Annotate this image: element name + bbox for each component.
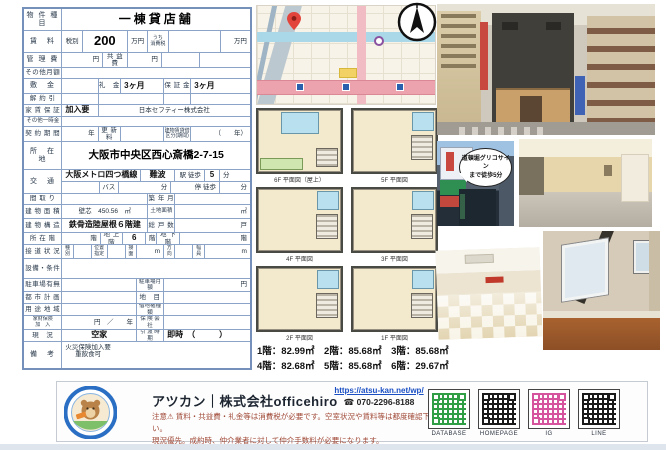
floorplan: 3F 平面図 [351, 187, 438, 263]
table-row: その他一時金 [24, 117, 250, 127]
station-badge [296, 83, 304, 91]
photo-interior-room [519, 139, 652, 227]
table-subcolumn: 大阪メトロ四つ橋線難波駅 徒歩5分バス分停 徒歩分 [62, 170, 250, 193]
table-cell: 地 目 [137, 292, 164, 303]
photo-building-exterior [437, 4, 655, 135]
table-cell: 火災保険加入要 重飲食可 [62, 342, 250, 368]
table-cell: 保 険 会 社 [137, 316, 164, 329]
table-cell: バス [100, 182, 119, 193]
table-row: 用 途 地 域借地権種類 [24, 304, 250, 316]
table-cell [99, 94, 165, 104]
table-cell: 建 物 面 積 [24, 205, 62, 218]
table-cell: 5 [205, 170, 220, 181]
floorplan-caption: 5F 平面図 [381, 175, 408, 184]
table-cell: 大阪メトロ四つ橋線 [62, 170, 141, 181]
table-cell [191, 94, 250, 104]
table-cell: 円 [164, 279, 250, 291]
table-cell [62, 68, 250, 78]
table-row: 所 在 階階地 上 階6階地 下 階階 [24, 233, 250, 245]
table-cell: 建 物 構 造 [24, 219, 62, 232]
table-cell: 建物賃貸借 区分(期間) [164, 127, 191, 141]
table-cell: 種 別 [62, 245, 73, 258]
table-cell [74, 245, 92, 258]
table-cell: 所 在 階 [24, 233, 62, 244]
table-row: 管 理 費円共 益 費円 [24, 53, 250, 68]
footer-note-2: 現況優先。成約時、仲介業者に対して仲介手数料が必要になります。 [152, 435, 442, 444]
table-row: 家 賃 保 証加入要日本セフティー株式会社 [24, 105, 250, 117]
station-badge [396, 83, 404, 91]
table-cell: 借地権種類 [137, 304, 164, 315]
table-cell: 礼 金 [99, 79, 122, 93]
table-cell: m [205, 245, 250, 258]
table-cell: 鉄骨造陸屋根６階建 [62, 219, 148, 232]
table-cell: 総 戸 数 [148, 219, 175, 232]
table-cell: 接 面 [126, 245, 137, 258]
table-row: 建 物 面 積壁芯 450.56 ㎡土地面積㎡ [24, 205, 250, 219]
qr-code-label: IG [545, 431, 552, 437]
table-cell: 200 [83, 31, 128, 52]
floorplan: 2F 平面図 [256, 266, 343, 342]
table-cell: 間 取 り [24, 194, 62, 204]
floorplan-caption: 3F 平面図 [381, 254, 408, 263]
table-cell: 家 賃 保 証 [24, 105, 62, 116]
table-cell: 税別 [62, 31, 82, 52]
qr-code-row: DATABASEHOMEPAGEIGLINE [427, 389, 621, 437]
table-cell [200, 53, 250, 67]
table-cell: 分 [220, 182, 250, 193]
footer-notes: 注意⚠ 賃料・共益費・礼金等は消費税が必要です。空室状況や賃料等は都度確認下さい… [152, 411, 442, 444]
compass-north-icon [397, 2, 437, 42]
table-cell: 停 徒歩 [171, 182, 220, 193]
table-cell [164, 316, 250, 329]
table-cell: 空家 [62, 330, 137, 341]
company-name: アツカン｜株式会社officehiro [152, 391, 338, 410]
table-cell: 壁芯 450.56 ㎡ [62, 205, 148, 218]
table-cell: 3ヶ月 [121, 79, 164, 93]
qr-code: DATABASE [427, 389, 471, 437]
table-cell [175, 194, 250, 204]
table-cell: うち 消費税 [148, 31, 168, 52]
table-row: 契 約 期 間年更 新 料建物賃貸借 区分(期間)（ 年） [24, 127, 250, 142]
table-cell: 駐車場有無 [24, 279, 62, 291]
table-row: 賃 料税別200万円うち 消費税万円 [24, 31, 250, 53]
qr-code: LINE [577, 389, 621, 437]
table-cell: 駐車場月額 [137, 279, 164, 291]
table-cell [164, 304, 250, 315]
table-cell: 都 市 計 画 [24, 292, 62, 303]
table-cell: 万円 [128, 31, 148, 52]
table-cell: 設備・条件 [24, 259, 62, 278]
table-row: 解 約 引 [24, 94, 250, 105]
table-cell [62, 194, 148, 204]
table-cell: （ 年） [191, 127, 250, 141]
map-landmark-block [339, 68, 357, 78]
table-cell: 備 考 [24, 342, 62, 368]
table-cell: 地 下 階 [157, 233, 180, 244]
table-cell [62, 304, 137, 315]
photo-interior-lobby [435, 247, 542, 340]
table-cell [164, 292, 250, 303]
table-cell: 更 新 料 [99, 127, 122, 141]
table-cell: 円 ／ 年 [62, 316, 137, 329]
table-cell: 契 約 期 間 [24, 127, 62, 141]
table-cell: 築 年 月 [148, 194, 175, 204]
floor-areas-line1: 1階：82.99㎡ 2階：85.68㎡ 3階：85.68㎡ [257, 344, 557, 359]
table-cell [62, 117, 250, 126]
table-cell: 土地面積 [148, 205, 175, 218]
table-cell: 円 [62, 53, 103, 67]
table-cell [62, 94, 98, 104]
table-cell: 幅 員 [193, 245, 204, 258]
table-cell [169, 31, 221, 52]
table-cell: 階 [146, 233, 157, 244]
table-cell: 分 [119, 182, 172, 193]
table-cell: 賃 料 [24, 31, 62, 52]
speech-bubble: 道頓堀グリコサイン まで徒歩5分 [459, 148, 512, 187]
property-listing-sheet: 物 件 種 目一棟貸店舗賃 料税別200万円うち 消費税万円管 理 費円共 益 … [0, 0, 666, 444]
table-cell: 6 [123, 233, 146, 244]
qr-code-image [428, 389, 470, 429]
phone-icon: ☎ [344, 397, 355, 407]
table-cell: ㎡ [175, 205, 250, 218]
table-cell: 即時 （ ） [164, 330, 250, 341]
company-footer: アツカン｜株式会社officehiro 注意⚠ 賃料・共益費・礼金等は消費税が必… [56, 381, 648, 442]
qr-code: HOMEPAGE [477, 389, 521, 437]
qr-code-label: HOMEPAGE [480, 431, 518, 437]
floorplan-caption: 1F 平面図 [381, 333, 408, 342]
qr-code-label: LINE [591, 431, 606, 437]
bubble-text-2: まで徒歩5分 [469, 172, 502, 180]
table-row: 建 物 構 造鉄骨造陸屋根６階建総 戸 数戸 [24, 219, 250, 233]
floorplan-caption: 4F 平面図 [286, 254, 313, 263]
table-cell: 万円 [221, 31, 250, 52]
table-cell: 家財保険 加 入 [24, 316, 62, 329]
table-cell [62, 182, 100, 193]
table-cell [121, 127, 164, 141]
floor-areas-line2: 4階：82.68㎡ 5階：85.68㎡ 6階：29.67㎡ [257, 359, 557, 374]
table-cell: 物 件 種 目 [24, 9, 62, 30]
table-row: 間 取 り築 年 月 [24, 194, 250, 205]
floorplan-drawing [351, 108, 438, 174]
table-cell [162, 53, 200, 67]
photo-dotonbori: 道頓堀グリコサイン まで徒歩5分 [437, 141, 514, 226]
table-cell: 敷 金 [24, 79, 62, 93]
table-cell: 所 在 地 [24, 142, 62, 169]
homepage-link[interactable]: https://atsu-kan.net/wp/ [319, 386, 439, 395]
table-cell: その他月額 [24, 68, 62, 78]
table-cell: 階 [180, 233, 250, 244]
table-cell: 管 理 費 [24, 53, 62, 67]
table-cell: m [137, 245, 164, 258]
floorplan: 1F 平面図 [351, 266, 438, 342]
table-cell: 3ヶ月 [191, 79, 250, 93]
floor-areas: 1階：82.99㎡ 2階：85.68㎡ 3階：85.68㎡ 4階：82.68㎡ … [257, 344, 557, 374]
bubble-text-1: 道頓堀グリコサイン [460, 155, 511, 172]
floorplan-drawing [256, 266, 343, 332]
table-cell: 共 益 費 [103, 53, 128, 67]
table-row: 設備・条件 [24, 259, 250, 279]
table-cell [62, 259, 250, 278]
station-badge [342, 83, 350, 91]
table-cell: 引 渡 時 期 [137, 330, 164, 341]
floorplan-drawing [351, 266, 438, 332]
table-row: 備 考火災保険加入要 重飲食可 [24, 342, 250, 368]
table-cell: 交 通 [24, 170, 62, 193]
table-cell: 接 道 状 況 [24, 245, 62, 258]
table-row: 駐車場有無駐車場月額円 [24, 279, 250, 292]
table-row: 交 通大阪メトロ四つ橋線難波駅 徒歩5分バス分停 徒歩分 [24, 170, 250, 194]
table-row: 家財保険 加 入円 ／ 年保 険 会 社 [24, 316, 250, 330]
floorplan-grid: 6F 平面図（屋上）5F 平面図4F 平面図3F 平面図2F 平面図1F 平面図 [256, 108, 438, 342]
table-cell [164, 94, 191, 104]
qr-code-image [528, 389, 570, 429]
qr-code: IG [527, 389, 571, 437]
map-pin-icon [287, 12, 301, 30]
floorplan-caption: 6F 平面図（屋上） [274, 175, 325, 184]
table-row: 接 道 状 況種 別位置 指定接 面m方 向幅 員m [24, 245, 250, 259]
table-cell: 円 [128, 53, 162, 67]
station-badge [374, 36, 384, 46]
contact-block: https://atsu-kan.net/wp/ ☎ 070-2296-8188 [319, 386, 439, 408]
phone-number: ☎ 070-2296-8188 [319, 397, 439, 408]
table-row: 所 在 地大阪市中央区西心斎橋2-7-15 [24, 142, 250, 170]
table-cell [62, 279, 137, 291]
table-cell: 日本セフティー株式会社 [99, 105, 250, 116]
table-cell: 戸 [175, 219, 250, 232]
qr-code-image [578, 389, 620, 429]
floorplan-drawing [256, 108, 343, 174]
floorplan: 5F 平面図 [351, 108, 438, 184]
table-cell: 大阪市中央区西心斎橋2-7-15 [62, 142, 250, 169]
qr-code-label: DATABASE [431, 431, 466, 437]
floorplan-drawing [256, 187, 343, 253]
table-cell: 位置 指定 [92, 245, 108, 258]
table-row: 都 市 計 画地 目 [24, 292, 250, 304]
floorplan: 6F 平面図（屋上） [256, 108, 343, 184]
table-cell: 方 向 [164, 245, 175, 258]
table-cell: 駅 徒歩 [175, 170, 205, 181]
table-cell [62, 292, 137, 303]
table-row: 敷 金礼 金3ヶ月保 証 金3ヶ月 [24, 79, 250, 94]
footer-note-1: 注意⚠ 賃料・共益費・礼金等は消費税が必要です。空室状況や賃料等は都度確認下さい… [152, 411, 442, 435]
table-cell [62, 79, 98, 93]
table-cell [175, 245, 193, 258]
table-cell: 解 約 引 [24, 94, 62, 104]
table-row: その他月額 [24, 68, 250, 79]
table-cell: 年 [62, 127, 98, 141]
table-cell: 地 上 階 [101, 233, 124, 244]
floorplan-drawing [351, 187, 438, 253]
floorplan: 4F 平面図 [256, 187, 343, 263]
table-cell: 保 証 金 [164, 79, 191, 93]
table-cell: 階 [62, 233, 100, 244]
table-cell: 一棟貸店舗 [62, 9, 250, 30]
table-cell [108, 245, 126, 258]
table-cell: 分 [220, 170, 250, 181]
table-row: 物 件 種 目一棟貸店舗 [24, 9, 250, 31]
qr-code-image [478, 389, 520, 429]
floorplan-caption: 2F 平面図 [286, 333, 313, 342]
table-cell: 用 途 地 域 [24, 304, 62, 315]
table-cell: 現 況 [24, 330, 62, 341]
table-cell: その他一時金 [24, 117, 62, 126]
photo-interior-windows [543, 231, 660, 350]
table-row: 現 況空家引 渡 時 期即時 （ ） [24, 330, 250, 342]
property-table: 物 件 種 目一棟貸店舗賃 料税別200万円うち 消費税万円管 理 費円共 益 … [22, 7, 252, 370]
table-cell: 加入要 [62, 105, 98, 116]
company-logo [64, 386, 117, 439]
table-cell: 難波 [141, 170, 175, 181]
